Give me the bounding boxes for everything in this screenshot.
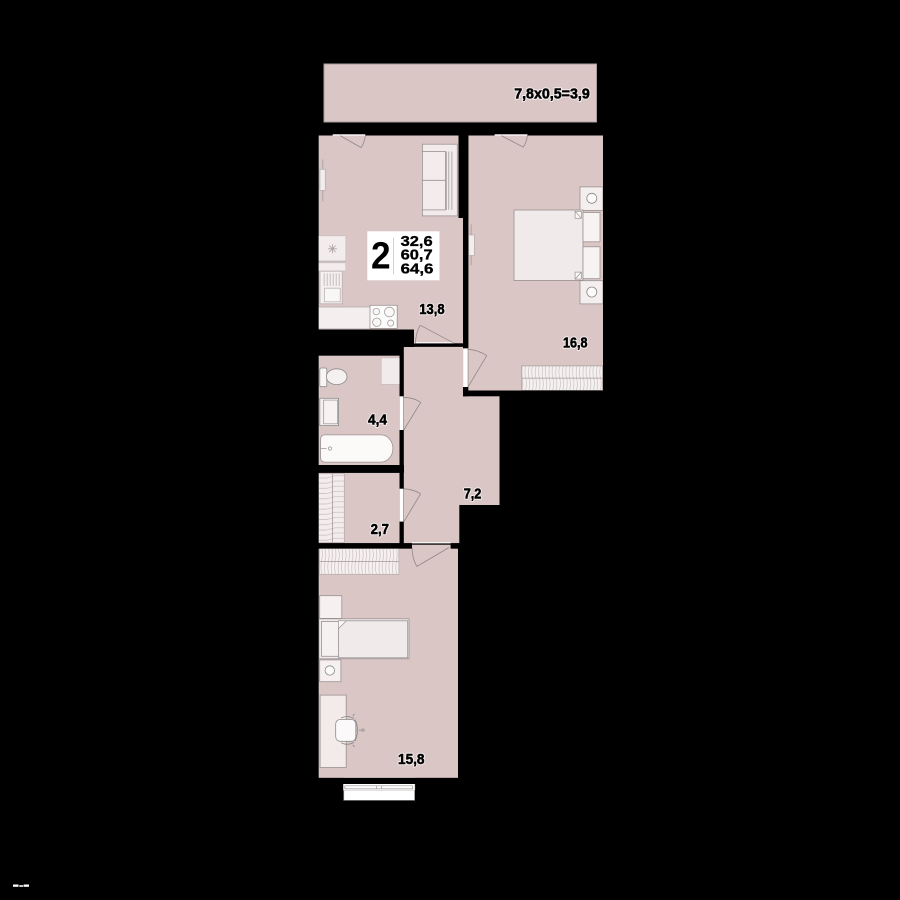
svg-text:7,2: 7,2 [464,485,482,502]
svg-text:64,6: 64,6 [401,260,434,277]
svg-text:13,8: 13,8 [419,301,444,318]
svg-text:2: 2 [371,236,391,278]
svg-text:15,8: 15,8 [398,751,425,768]
svg-text:7,8x0,5=3,9: 7,8x0,5=3,9 [514,86,590,103]
svg-text:4,4: 4,4 [368,411,388,428]
svg-text:16,8: 16,8 [563,335,588,352]
svg-text:2,7: 2,7 [371,521,389,538]
